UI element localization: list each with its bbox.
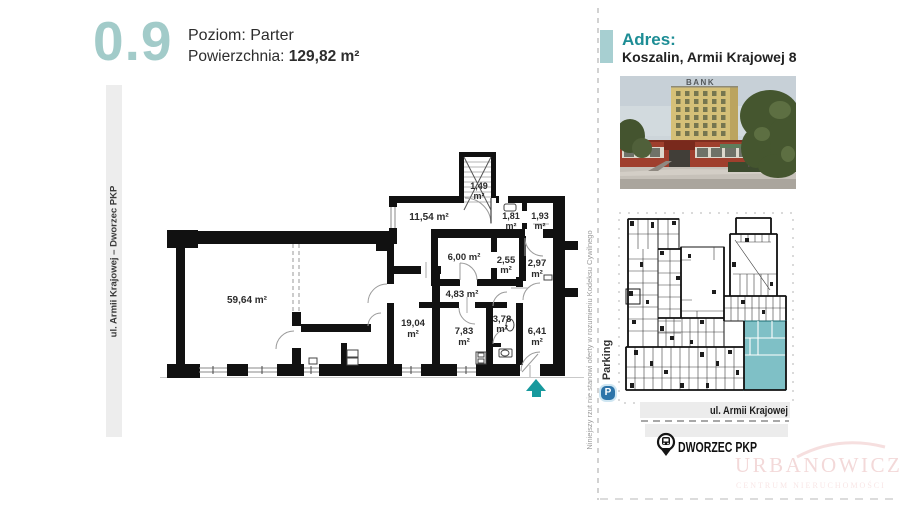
- svg-text:m²: m²: [458, 337, 470, 348]
- svg-text:m²: m²: [496, 324, 508, 335]
- svg-text:BANK: BANK: [686, 78, 715, 87]
- svg-text:m²: m²: [407, 329, 419, 340]
- svg-text:11,54 m²: 11,54 m²: [409, 212, 449, 223]
- svg-text:6,41: 6,41: [528, 326, 547, 337]
- svg-text:19,04: 19,04: [401, 318, 425, 329]
- svg-text:59,64 m²: 59,64 m²: [227, 295, 268, 306]
- svg-text:m²: m²: [500, 265, 512, 276]
- svg-text:ul. Armii Krajowej: ul. Armii Krajowej: [710, 405, 788, 417]
- svg-text:1,93: 1,93: [531, 211, 549, 221]
- svg-text:m²: m²: [531, 337, 543, 348]
- svg-text:6,00 m²: 6,00 m²: [448, 252, 481, 263]
- svg-text:7,83: 7,83: [455, 326, 474, 337]
- svg-text:m²: m²: [531, 269, 543, 280]
- svg-text:1,49: 1,49: [470, 181, 488, 191]
- svg-text:URBANOWICZ: URBANOWICZ: [735, 453, 900, 477]
- svg-text:1,81: 1,81: [502, 211, 520, 221]
- svg-text:m²: m²: [506, 221, 517, 231]
- svg-text:CENTRUM NIERUCHOMOŚCI: CENTRUM NIERUCHOMOŚCI: [736, 480, 886, 490]
- svg-text:m²: m²: [474, 191, 485, 201]
- svg-text:2,97: 2,97: [528, 258, 547, 269]
- svg-text:m²: m²: [535, 221, 546, 231]
- svg-text:4,83 m²: 4,83 m²: [446, 289, 479, 300]
